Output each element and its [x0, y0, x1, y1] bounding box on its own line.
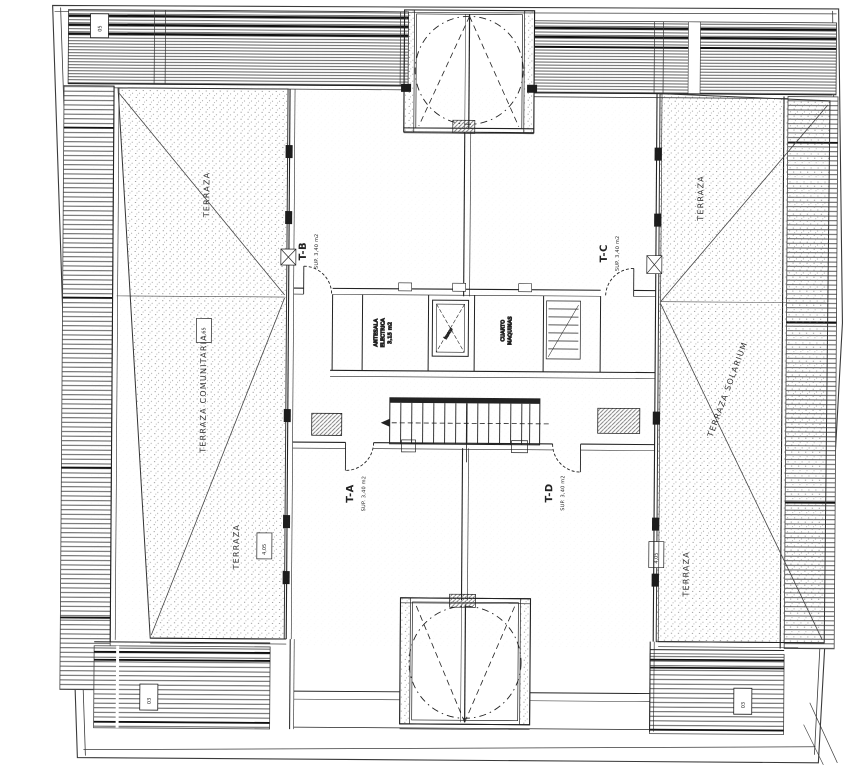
bottom-left-roof-band: 03	[94, 642, 271, 729]
keynote-tag-bottom-right-label: 03	[741, 702, 747, 708]
keynote-tag-bottom-right	[734, 688, 752, 714]
floorplan-canvas: 05	[0, 0, 844, 768]
floorplan-sheet: 05	[0, 0, 844, 768]
keynote-tag-bottom-left-label: 03	[147, 698, 153, 704]
bottom-right-roof-band: 03	[650, 650, 785, 735]
top-left-roof-band: 05	[68, 10, 409, 90]
keynote-tag-top-left-label: 05	[97, 25, 103, 31]
scan-noise-overlay	[88, 84, 832, 649]
keynote-tag-bottom-left	[140, 684, 158, 710]
